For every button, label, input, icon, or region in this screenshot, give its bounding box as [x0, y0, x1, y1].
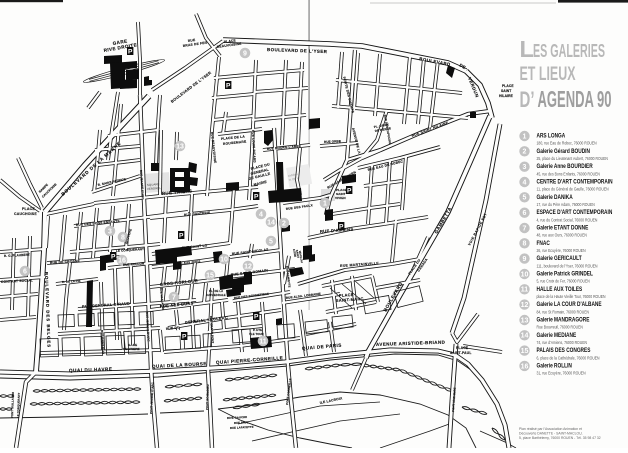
svg-text:P: P [182, 334, 187, 341]
svg-text:CAUCHOISE: CAUCHOISE [14, 212, 37, 216]
svg-text:180, rue Eau de Robec, 76000 R: 180, rue Eau de Robec, 76000 ROUEN [537, 140, 597, 146]
svg-text:PLACE: PLACE [456, 346, 469, 350]
svg-text:4, rue du Contrat Social, 7600: 4, rue du Contrat Social, 76000 ROUEN [537, 217, 598, 223]
svg-text:ARS LONGA: ARS LONGA [537, 133, 566, 140]
svg-text:11, place du Général de Gaulle: 11, place du Général de Gaulle, 76000 RO… [537, 186, 609, 192]
svg-text:Galerie ROLLIN: Galerie ROLLIN [537, 363, 572, 370]
svg-text:Galerie Gérard BOUDIN: Galerie Gérard BOUDIN [537, 148, 590, 155]
svg-text:SAINT-PAUL: SAINT-PAUL [450, 351, 472, 355]
svg-text:HALLE AUX TOILES: HALLE AUX TOILES [537, 286, 583, 293]
svg-text:12: 12 [521, 302, 529, 309]
svg-text:2: 2 [282, 220, 286, 227]
svg-text:P: P [347, 188, 352, 195]
svg-text:Découverte DANETTE - SAINT-MAC: Découverte DANETTE - SAINT-MACLOU, [519, 432, 583, 436]
svg-text:10: 10 [521, 271, 529, 278]
svg-text:PALAIS DES CONGRES: PALAIS DES CONGRES [537, 348, 591, 355]
svg-text:D’: D’ [520, 87, 535, 112]
svg-text:VLE TOUR: VLE TOUR [249, 332, 264, 336]
svg-text:5: 5 [523, 195, 527, 202]
svg-text:15: 15 [521, 348, 529, 355]
svg-text:FNAC: FNAC [537, 240, 550, 247]
svg-text:Galerie Patrick GRINDEL: Galerie Patrick GRINDEL [537, 271, 594, 278]
svg-text:P: P [111, 254, 116, 261]
svg-text:14: 14 [267, 219, 275, 226]
svg-text:RUE PAUL: RUE PAUL [234, 420, 249, 425]
svg-text:Galerie DANIKA: Galerie DANIKA [537, 194, 573, 201]
svg-text:9: 9 [523, 256, 527, 263]
svg-text:31, rue Ecuyère, 76000 ROUEN: 31, rue Ecuyère, 76000 ROUEN [537, 370, 586, 376]
svg-text:Galerie MANDRAGORE: Galerie MANDRAGORE [537, 317, 590, 324]
svg-text:11: 11 [259, 338, 267, 345]
svg-text:7: 7 [523, 225, 527, 232]
svg-text:ES GALERIES: ES GALERIES [533, 41, 605, 61]
svg-text:25, place du Lieutenant Aubert: 25, place du Lieutenant Aubert, 76000 RO… [537, 155, 608, 161]
svg-text:48, rue aux Ours, 76000 ROUEN: 48, rue aux Ours, 76000 ROUEN [537, 232, 587, 238]
svg-text:P: P [254, 194, 259, 201]
svg-text:84, rue St Romain, 76000 ROUEN: 84, rue St Romain, 76000 ROUEN [537, 309, 590, 315]
svg-text:SAINT: SAINT [501, 89, 511, 93]
svg-text:6: 6 [23, 268, 27, 275]
svg-text:P: P [179, 233, 184, 240]
svg-text:1: 1 [523, 133, 527, 140]
svg-text:3: 3 [523, 164, 527, 171]
svg-text:Galerie ETANT DONNE: Galerie ETANT DONNE [537, 225, 589, 232]
svg-text:Galerie MEDIANE: Galerie MEDIANE [537, 332, 577, 339]
svg-text:place de la Haute Vieille Tour: place de la Haute Vieille Tour, 76000 RO… [537, 293, 606, 299]
svg-text:11: 11 [521, 287, 529, 294]
svg-text:Galerie LA COUR D'ALBANE: Galerie LA COUR D'ALBANE [537, 302, 602, 309]
svg-text:AGENDA 90: AGENDA 90 [538, 86, 612, 112]
svg-text:4: 4 [259, 211, 263, 218]
svg-text:17, rue du Père Adam, 76000 RO: 17, rue du Père Adam, 76000 ROUEN [537, 201, 595, 207]
svg-text:15: 15 [206, 272, 214, 279]
svg-text:PL. DE LA: PL. DE LA [209, 289, 223, 293]
svg-text:CENTRE D'ART CONTEMPORAIN: CENTRE D'ART CONTEMPORAIN [537, 179, 613, 186]
svg-text:6, place de la Cathédrale, 760: 6, place de la Cathédrale, 76000 ROUEN [537, 355, 600, 361]
svg-text:8: 8 [523, 241, 527, 248]
svg-text:Galerie Anne BOURDIER: Galerie Anne BOURDIER [537, 164, 593, 171]
svg-text:L: L [520, 36, 534, 62]
svg-text:111, boulevard de l'Yser, 7600: 111, boulevard de l'Yser, 76000 ROUEN [537, 263, 598, 269]
svg-text:P: P [226, 83, 231, 90]
svg-text:ET LIEUX: ET LIEUX [520, 64, 576, 85]
svg-text:P. HTE: P. HTE [253, 328, 262, 332]
svg-text:5, rue Croix de Fer, 76000 ROU: 5, rue Croix de Fer, 76000 ROUEN [537, 278, 590, 284]
svg-text:5, place Barthélemy, 76000 ROU: 5, place Barthélemy, 76000 ROUEN - Tél. … [519, 436, 601, 440]
svg-text:PLACE: PLACE [22, 207, 35, 211]
svg-text:16: 16 [521, 363, 529, 370]
svg-text:26, rue Ecuyère, 76000 ROUEN: 26, rue Ecuyère, 76000 ROUEN [537, 247, 586, 253]
svg-text:1: 1 [323, 200, 327, 207]
svg-text:14: 14 [521, 333, 529, 340]
svg-text:7: 7 [172, 294, 176, 301]
svg-text:Galerie GERICAULT: Galerie GERICAULT [537, 256, 583, 263]
svg-text:PLACE: PLACE [502, 84, 514, 88]
svg-text:3: 3 [108, 228, 112, 235]
svg-text:12: 12 [244, 263, 252, 270]
svg-text:74, rue d'Amiens, 76000 ROUEN: 74, rue d'Amiens, 76000 ROUEN [537, 339, 588, 345]
svg-text:10: 10 [220, 256, 228, 263]
svg-text:6: 6 [523, 210, 527, 217]
svg-text:CATHEDRALE: CATHEDRALE [206, 293, 226, 297]
svg-text:ESPACE D'ART CONTEMPORAIN: ESPACE D'ART CONTEMPORAIN [537, 210, 613, 217]
svg-text:9: 9 [243, 50, 247, 57]
svg-text:VIVIEN: VIVIEN [335, 196, 346, 200]
svg-text:5: 5 [269, 238, 273, 245]
svg-text:P: P [128, 49, 133, 56]
svg-text:2: 2 [523, 149, 527, 156]
svg-text:P: P [254, 314, 259, 321]
svg-text:Plan réalisé par l’Association: Plan réalisé par l’Association Animation… [519, 427, 582, 431]
svg-text:13: 13 [176, 143, 184, 150]
svg-text:HILAIRE: HILAIRE [499, 94, 514, 98]
svg-text:ROUTIERE: ROUTIERE [123, 347, 140, 351]
svg-text:13: 13 [521, 317, 529, 324]
svg-text:4: 4 [523, 179, 527, 186]
svg-text:45, rue des Bons Enfants, 7600: 45, rue des Bons Enfants, 76000 ROUEN [537, 171, 600, 177]
svg-text:Rue Bouvreuil, 76000 ROUEN: Rue Bouvreuil, 76000 ROUEN [537, 324, 583, 330]
